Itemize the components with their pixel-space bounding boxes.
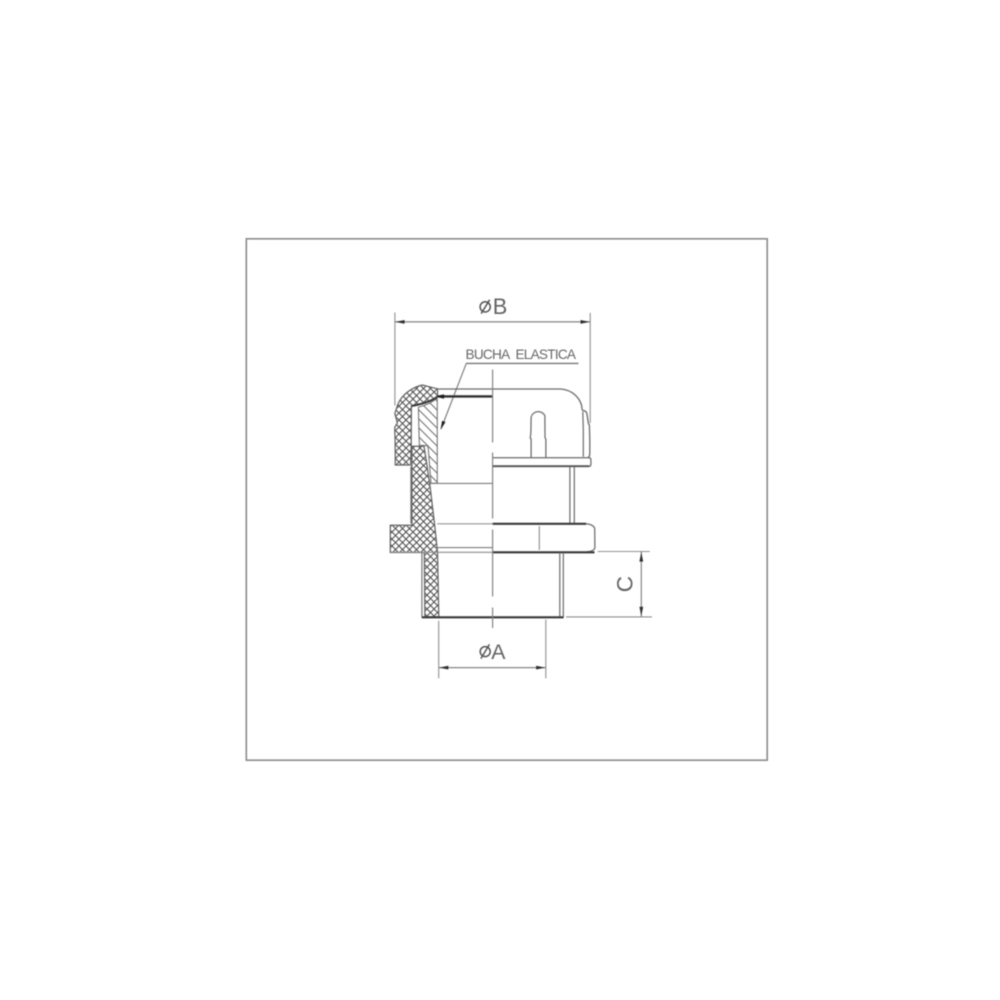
svg-text:A: A (491, 640, 506, 664)
svg-text:B: B (493, 294, 508, 319)
svg-text:C: C (613, 576, 638, 592)
svg-text:BUCHA ELASTICA: BUCHA ELASTICA (466, 347, 577, 362)
